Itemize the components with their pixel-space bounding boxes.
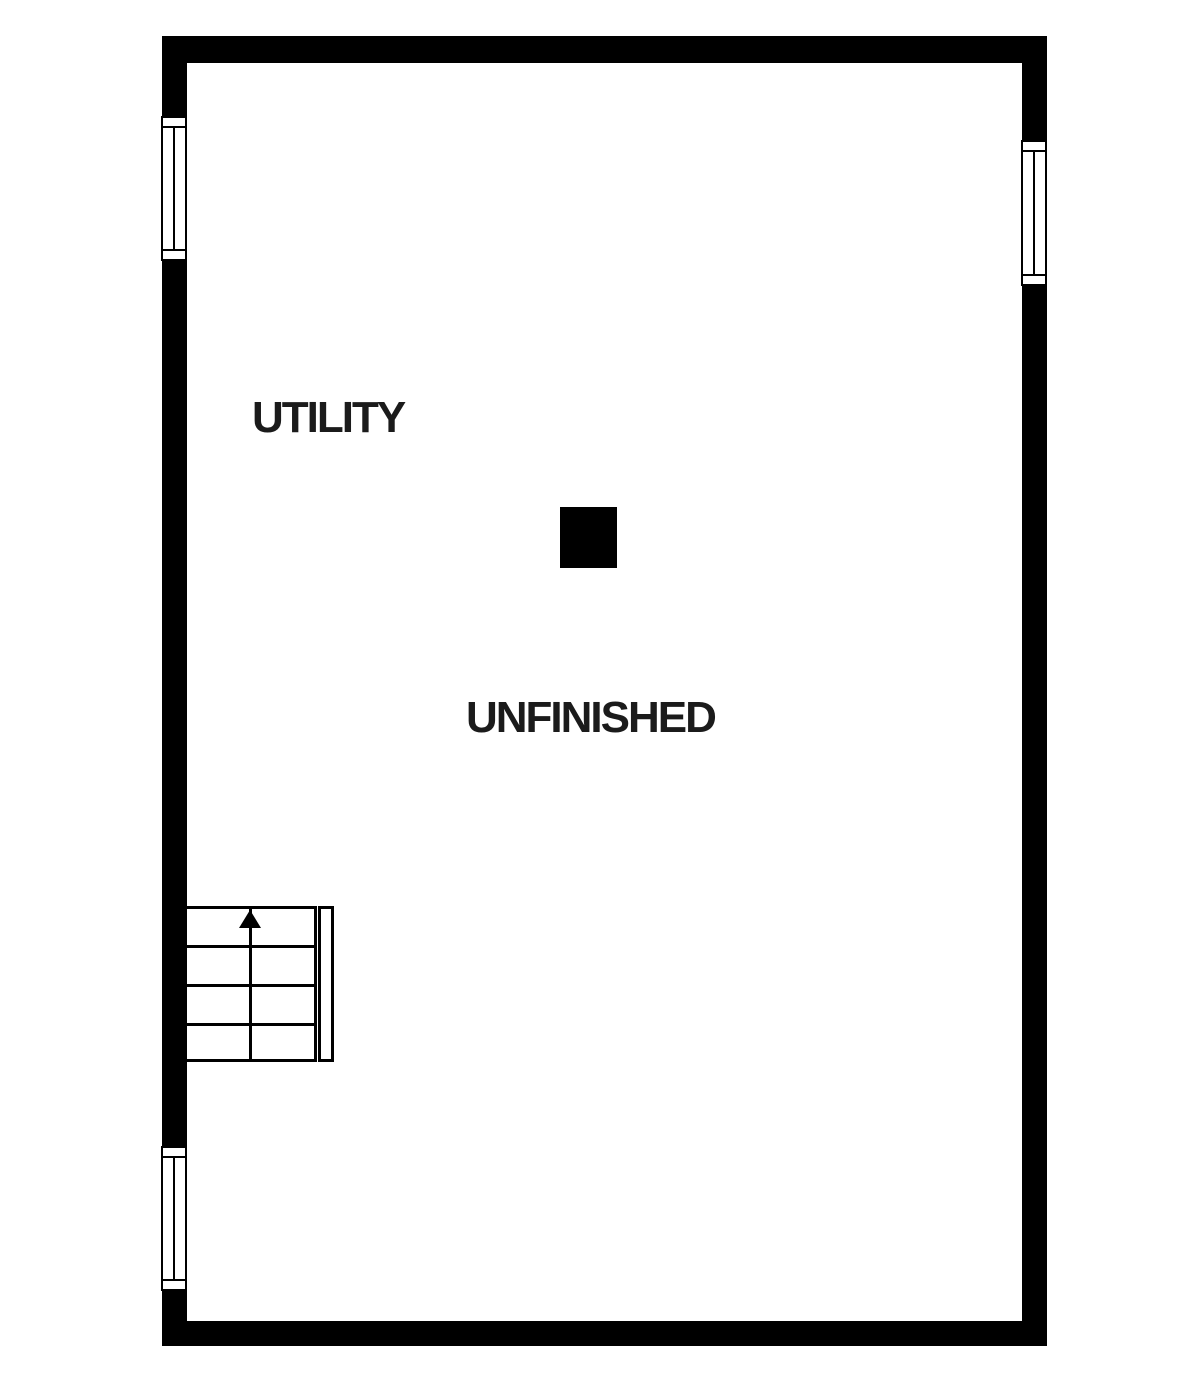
stair-center-line — [249, 909, 252, 1059]
window-left-upper-icon — [161, 116, 187, 261]
staircase-up — [187, 906, 317, 1062]
window-right-icon — [1021, 140, 1047, 286]
floor-plan: UTILITY UNFINISHED — [0, 0, 1200, 1394]
window-glass-line — [173, 1158, 175, 1279]
room-label-unfinished: UNFINISHED — [466, 696, 715, 740]
window-left-lower-icon — [161, 1146, 187, 1291]
window-cap — [1023, 274, 1045, 276]
room-label-utility: UTILITY — [252, 396, 404, 440]
arrow-up-icon — [239, 910, 261, 928]
window-glass-line — [1033, 152, 1035, 274]
wall-top — [162, 36, 1046, 63]
support-column — [560, 507, 617, 568]
stair-rail — [318, 906, 334, 1062]
window-glass-line — [173, 128, 175, 249]
window-cap — [163, 1279, 185, 1281]
wall-bottom — [162, 1321, 1046, 1346]
window-cap — [163, 249, 185, 251]
